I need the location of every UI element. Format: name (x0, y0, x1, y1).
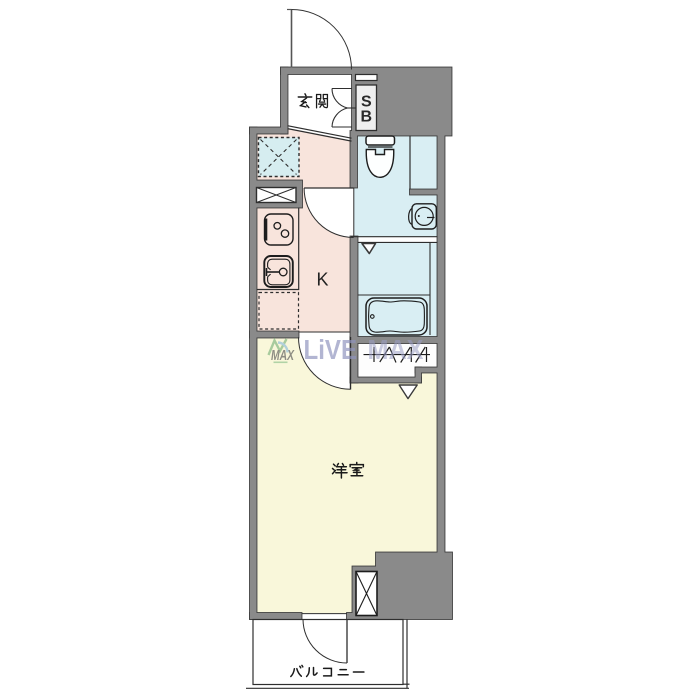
svg-text:B: B (361, 109, 373, 126)
svg-text:K: K (317, 270, 329, 290)
svg-text:MAX: MAX (271, 347, 295, 364)
svg-text:MAX: MAX (368, 334, 424, 365)
svg-text:LiVE: LiVE (304, 334, 358, 365)
